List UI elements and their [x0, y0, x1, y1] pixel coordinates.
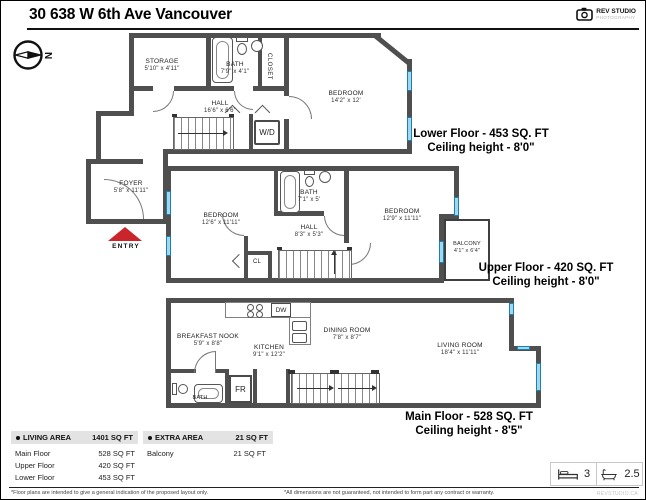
baths-count: 2.5 — [624, 468, 639, 480]
beds-count: 3 — [584, 468, 590, 480]
watermark: REVSTUDIO.CA — [597, 491, 638, 497]
beds-stat: 3 — [550, 462, 597, 486]
baths-stat: 2.5 — [596, 462, 643, 486]
extra-area-total: 21 SQ FT — [235, 433, 268, 442]
bed-bath-stats: 3 2.5 — [550, 462, 643, 486]
footnote-left: *Floor plans are intended to give a gene… — [11, 490, 208, 496]
floor-plan-page: 30 638 W 6th Ave Vancouver REV STUDIO PH… — [0, 0, 646, 500]
footer-divider — [9, 487, 639, 488]
bath-icon — [599, 467, 619, 482]
bullet-icon — [148, 436, 152, 440]
bullet-icon — [16, 436, 20, 440]
living-area-total: 1401 SQ FT — [92, 433, 133, 442]
table-row: Upper Floor 420 SQ FT — [15, 460, 135, 471]
area-summary: LIVING AREA 1401 SQ FT Main Floor 528 SQ… — [1, 1, 645, 499]
table-row: Main Floor 528 SQ FT — [15, 448, 135, 459]
living-area-header: LIVING AREA 1401 SQ FT — [11, 431, 138, 444]
table-row: Lower Floor 453 SQ FT — [15, 472, 135, 483]
table-row: Balcony 21 SQ FT — [147, 448, 266, 459]
extra-area-header: EXTRA AREA 21 SQ FT — [143, 431, 273, 444]
footnote-right: *All dimensions are not guaranteed, not … — [284, 490, 494, 496]
bed-icon — [557, 467, 579, 482]
